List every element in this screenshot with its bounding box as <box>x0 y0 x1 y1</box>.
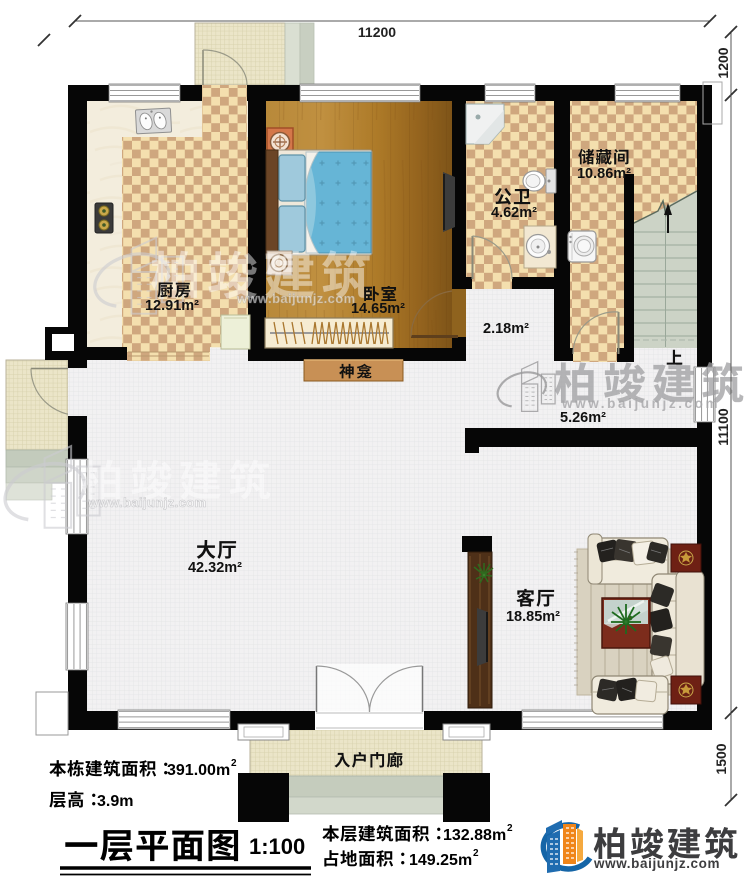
svg-text:149.25m: 149.25m <box>409 852 472 869</box>
svg-text:5.26m²: 5.26m² <box>560 410 606 426</box>
svg-text:42.32m²: 42.32m² <box>188 560 242 576</box>
svg-text:132.88m: 132.88m <box>443 827 506 844</box>
svg-text:2.18m²: 2.18m² <box>483 321 529 337</box>
svg-text:2: 2 <box>231 758 237 769</box>
svg-text:11100: 11100 <box>715 408 731 446</box>
svg-text:2: 2 <box>473 848 479 859</box>
svg-text:3.9m: 3.9m <box>97 793 133 810</box>
svg-text:2: 2 <box>507 823 513 834</box>
svg-text:1200: 1200 <box>715 47 731 78</box>
svg-text:18.85m²: 18.85m² <box>506 609 560 625</box>
svg-text:1500: 1500 <box>713 743 729 774</box>
svg-text:4.62m²: 4.62m² <box>491 205 537 221</box>
svg-text:10.86m²: 10.86m² <box>577 166 631 182</box>
svg-text:11200: 11200 <box>358 24 396 40</box>
svg-text:14.65m²: 14.65m² <box>351 301 405 317</box>
svg-text:1:100: 1:100 <box>249 834 305 859</box>
svg-text:12.91m²: 12.91m² <box>145 298 199 314</box>
svg-text:www.baijunjz.com: www.baijunjz.com <box>87 495 207 510</box>
svg-text:391.00m: 391.00m <box>167 762 230 779</box>
svg-text:www.baijunjz.com: www.baijunjz.com <box>561 396 720 411</box>
svg-text:www.baijunjz.com: www.baijunjz.com <box>236 291 356 306</box>
svg-text:www.baijunjz.com: www.baijunjz.com <box>593 856 720 871</box>
